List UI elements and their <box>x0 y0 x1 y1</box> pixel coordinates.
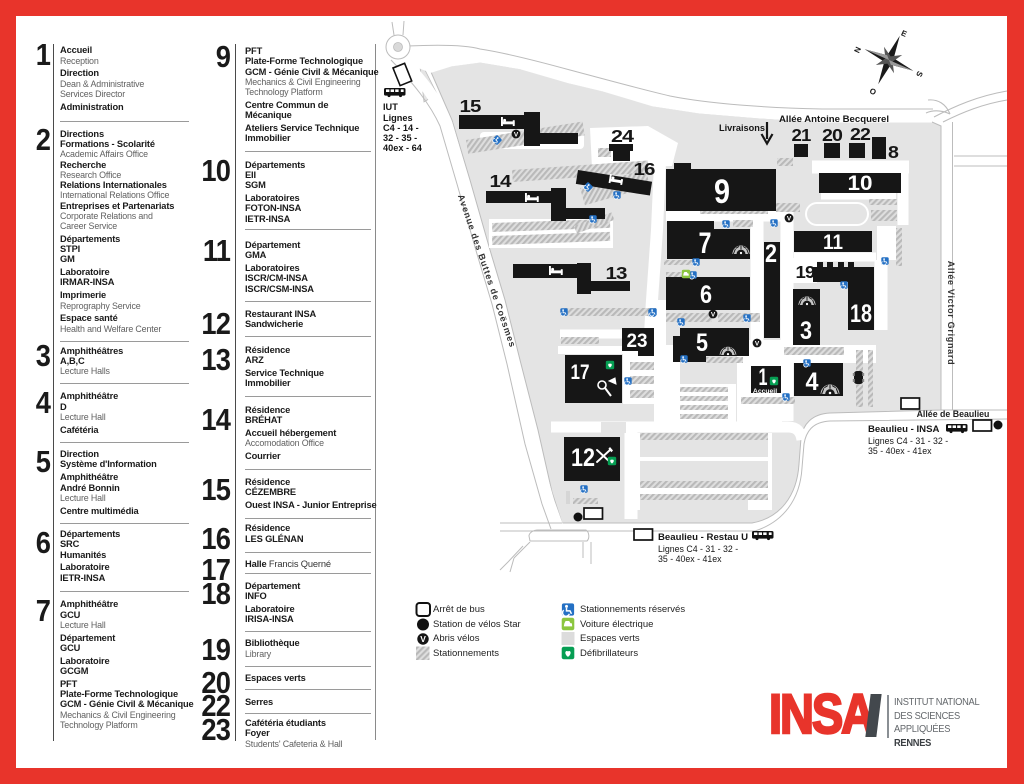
svg-text:Allée Antoine Becquerel: Allée Antoine Becquerel <box>779 114 889 125</box>
svg-text:8: 8 <box>888 142 899 162</box>
svg-text:18: 18 <box>850 300 872 328</box>
svg-text:9: 9 <box>714 173 730 211</box>
svg-text:C4 - 14 -: C4 - 14 - <box>383 123 419 133</box>
svg-text:16: 16 <box>634 159 656 179</box>
svg-text:S: S <box>914 70 925 79</box>
svg-text:6: 6 <box>700 281 712 309</box>
svg-text:24: 24 <box>611 126 634 146</box>
svg-text:N: N <box>852 45 863 54</box>
svg-text:E: E <box>900 29 909 40</box>
svg-text:Lignes C4 - 31 - 32 -: Lignes C4 - 31 - 32 - <box>868 436 948 446</box>
svg-text:1: 1 <box>759 364 768 391</box>
svg-text:Lignes: Lignes <box>383 113 413 123</box>
svg-text:2: 2 <box>765 240 777 268</box>
svg-text:Accueil: Accueil <box>753 388 777 395</box>
svg-text:Allée de Beaulieu: Allée de Beaulieu <box>917 409 990 419</box>
svg-text:Beaulieu - INSA: Beaulieu - INSA <box>868 424 940 435</box>
svg-text:23: 23 <box>627 331 648 352</box>
svg-text:11: 11 <box>823 231 843 254</box>
svg-text:12: 12 <box>571 444 595 472</box>
svg-text:10: 10 <box>848 172 873 195</box>
svg-text:V: V <box>420 634 426 644</box>
svg-text:Lignes C4 - 31 - 32 -: Lignes C4 - 31 - 32 - <box>658 544 738 554</box>
svg-text:15: 15 <box>460 96 482 116</box>
svg-text:35 - 40ex - 41ex: 35 - 40ex - 41ex <box>868 446 932 456</box>
svg-text:13: 13 <box>606 263 628 283</box>
svg-text:19: 19 <box>796 262 816 282</box>
svg-text:3: 3 <box>800 317 812 345</box>
svg-text:4: 4 <box>806 368 819 396</box>
svg-text:14: 14 <box>490 171 512 191</box>
svg-text:5: 5 <box>696 329 708 357</box>
svg-text:Allée Victor Grignard: Allée Victor Grignard <box>946 261 956 366</box>
svg-text:32 - 35 -: 32 - 35 - <box>383 133 417 143</box>
svg-text:22: 22 <box>850 124 871 144</box>
svg-text:IUT: IUT <box>383 102 398 112</box>
svg-text:7: 7 <box>699 227 712 260</box>
svg-text:Beaulieu - Restau U: Beaulieu - Restau U <box>658 532 748 543</box>
svg-text:O: O <box>868 86 877 97</box>
svg-text:17: 17 <box>571 361 590 384</box>
svg-text:21: 21 <box>792 125 812 145</box>
svg-text:20: 20 <box>822 125 843 145</box>
svg-text:Livraisons: Livraisons <box>719 123 765 133</box>
svg-text:40ex - 64: 40ex - 64 <box>383 143 423 153</box>
svg-text:35 - 40ex - 41ex: 35 - 40ex - 41ex <box>658 554 722 564</box>
